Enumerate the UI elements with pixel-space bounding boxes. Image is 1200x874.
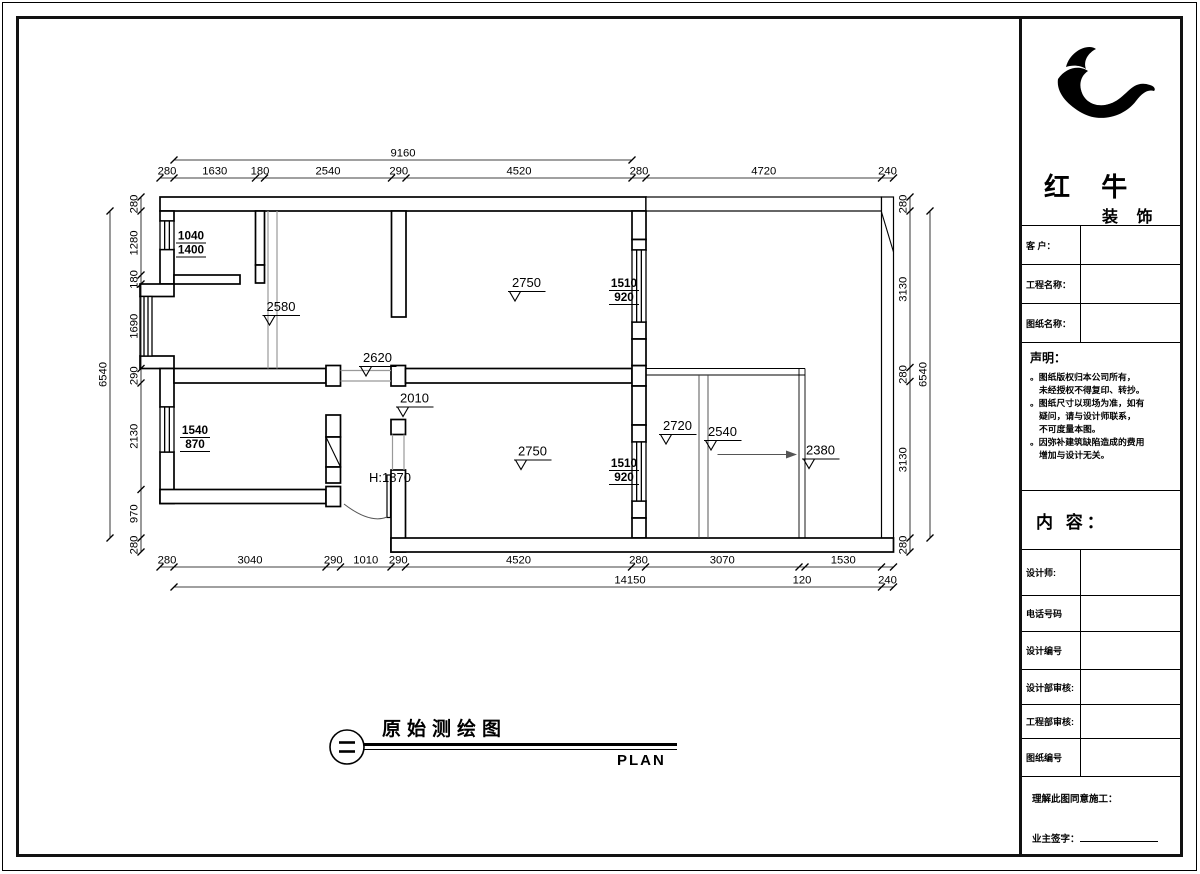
dim-label: 2540 xyxy=(315,166,340,178)
height-marker: 2750 xyxy=(514,444,552,470)
dim-label: 290 xyxy=(389,166,408,178)
dim-label: 3040 xyxy=(237,555,262,567)
drawing-name-label: 图纸名称： xyxy=(1022,304,1081,342)
dim-label: 120 xyxy=(793,575,812,587)
declaration-line: 不可度量本图。 xyxy=(1030,423,1174,436)
dim-label: 180 xyxy=(129,270,141,289)
height-value: 2720 xyxy=(663,418,692,433)
height-marker: 2540 xyxy=(704,424,742,450)
declaration-line: 。图纸版权归本公司所有， xyxy=(1030,371,1174,384)
owner-sign: 业主签字： xyxy=(1032,831,1174,845)
floor-plan: 9160 280 1630 180 2540 290 4520 280 4720… xyxy=(88,140,948,620)
row-eng-audit: 工程部审核: xyxy=(1022,705,1180,739)
title-underline-thin xyxy=(364,749,677,750)
section-symbol xyxy=(326,726,370,770)
height-value: 2010 xyxy=(400,391,429,406)
window-value: 1540 xyxy=(182,424,209,437)
window-labels: 1040 1400 1540 870 1510 920 1510 920 xyxy=(176,230,639,485)
dim-label: 3070 xyxy=(710,555,735,567)
window-label: 1540 870 xyxy=(180,424,210,452)
dim-label: 1010 xyxy=(353,555,378,567)
design-audit-label: 设计部审核: xyxy=(1022,670,1081,704)
declaration-line: 。因弥补建筑缺陷造成的费用 xyxy=(1030,436,1174,449)
declaration-line: 增加与设计无关。 xyxy=(1030,449,1174,462)
height-value: 2750 xyxy=(518,444,547,459)
window-value: 1510 xyxy=(611,277,638,290)
dim-label: 4520 xyxy=(506,166,531,178)
dim-label: 280 xyxy=(158,166,177,178)
consent-text: 理解此图同意施工： xyxy=(1032,791,1174,805)
brand-name: 红 牛 xyxy=(1044,167,1139,204)
dim-label: 280 xyxy=(898,536,910,555)
dim-label: 1530 xyxy=(831,555,856,567)
declaration-line: 未经授权不得复印、转抄。 xyxy=(1030,384,1174,397)
content-section: 内 容： xyxy=(1022,491,1180,550)
height-value: 2620 xyxy=(363,350,392,365)
phone-label: 电话号码 xyxy=(1022,596,1081,631)
dim-right-overall: 6540 xyxy=(918,362,930,387)
dim-label: 280 xyxy=(158,555,177,567)
dim-label: 1280 xyxy=(129,230,141,255)
owner-sign-label: 业主签字： xyxy=(1032,834,1080,845)
dim-label: 3130 xyxy=(898,447,910,472)
window-value: 1510 xyxy=(611,457,638,470)
dim-left-overall: 6540 xyxy=(98,362,110,387)
detail-lines xyxy=(326,212,894,467)
height-value: 2580 xyxy=(267,299,296,314)
height-marker: 2720 xyxy=(659,418,697,444)
dim-label: 4520 xyxy=(506,555,531,567)
customer-label: 客 户： xyxy=(1022,226,1081,264)
row-project: 工程名称： xyxy=(1022,265,1180,304)
window-value: 1040 xyxy=(178,230,205,243)
height-value: 2750 xyxy=(512,275,541,290)
dim-label: 280 xyxy=(630,166,649,178)
brand-logo-icon xyxy=(1036,41,1166,151)
height-value: 2540 xyxy=(708,424,737,439)
row-customer: 客 户： xyxy=(1022,226,1180,265)
dim-label: 280 xyxy=(629,555,648,567)
dim-label: 4720 xyxy=(751,166,776,178)
row-design-audit: 设计部审核: xyxy=(1022,670,1180,705)
dim-label: 240 xyxy=(878,166,897,178)
window-value: 920 xyxy=(614,471,634,484)
window-value: 920 xyxy=(614,291,634,304)
window-value: 1400 xyxy=(178,244,205,257)
dim-label: 280 xyxy=(898,365,910,384)
door-height-label: H:1870 xyxy=(369,470,411,485)
drawing-title: 原始测绘图 xyxy=(382,714,507,741)
declaration: 声明： 。图纸版权归本公司所有， 未经授权不得复印、转抄。 。图纸尺寸以现场为准… xyxy=(1022,343,1180,491)
title-block: 红 牛 装 饰 客 户： 工程名称： 图纸名称： 声明： 。图纸版权归本公司所有… xyxy=(1019,16,1183,857)
design-no-label: 设计编号 xyxy=(1022,632,1081,669)
signature-line xyxy=(1080,831,1158,842)
designer-label: 设计师: xyxy=(1022,550,1081,595)
row-phone: 电话号码 xyxy=(1022,596,1180,632)
walls xyxy=(140,197,894,552)
dim-label: 290 xyxy=(324,555,343,567)
declaration-line: 疑问，请与设计师联系， xyxy=(1030,410,1174,423)
height-marker: 2010 xyxy=(396,391,434,417)
page: { "title_block": { "brand": "红 牛", "bran… xyxy=(0,0,1200,874)
declaration-line: 。图纸尺寸以现场为准，如有 xyxy=(1030,397,1174,410)
eng-audit-label: 工程部审核: xyxy=(1022,705,1081,738)
dim-label: 3130 xyxy=(898,277,910,302)
row-drawing-no: 图纸编号 xyxy=(1022,739,1180,777)
project-label: 工程名称： xyxy=(1022,265,1081,303)
dim-label: 290 xyxy=(389,555,408,567)
brand-subname: 装 饰 xyxy=(1102,203,1159,227)
dim-label: 180 xyxy=(251,166,270,178)
window-value: 870 xyxy=(185,438,205,451)
logo-cell: 红 牛 装 饰 xyxy=(1022,19,1180,226)
row-designer: 设计师: xyxy=(1022,550,1180,596)
dim-label: 280 xyxy=(129,536,141,555)
thin-walls xyxy=(646,369,805,539)
dim-label: 280 xyxy=(129,195,141,214)
dim-label: 290 xyxy=(129,366,141,385)
door-arc xyxy=(344,504,387,519)
content-label: 内 容： xyxy=(1022,508,1108,533)
dim-label: 1630 xyxy=(202,166,227,178)
dim-bottom-overall: 14150 xyxy=(614,575,645,587)
drawing-no-label: 图纸编号 xyxy=(1022,739,1081,776)
direction-arrow xyxy=(718,451,798,459)
height-value: 2380 xyxy=(806,443,835,458)
consent-section: 理解此图同意施工： 业主签字： xyxy=(1022,777,1180,854)
row-design-no: 设计编号 xyxy=(1022,632,1180,670)
title-underline-thick xyxy=(364,743,677,746)
dim-label: 2130 xyxy=(129,424,141,449)
window-label: 1040 1400 xyxy=(176,230,206,258)
height-marker: 2380 xyxy=(802,443,840,469)
row-drawing-name: 图纸名称： xyxy=(1022,304,1180,343)
dim-label: 1690 xyxy=(129,314,141,339)
dim-label: 240 xyxy=(878,575,897,587)
dim-label: 280 xyxy=(898,195,910,214)
height-marker: 2750 xyxy=(508,275,546,301)
plan-label: PLAN xyxy=(617,752,666,769)
declaration-title: 声明： xyxy=(1030,349,1174,366)
dim-label: 970 xyxy=(129,504,141,523)
dim-top-overall: 9160 xyxy=(390,148,415,160)
